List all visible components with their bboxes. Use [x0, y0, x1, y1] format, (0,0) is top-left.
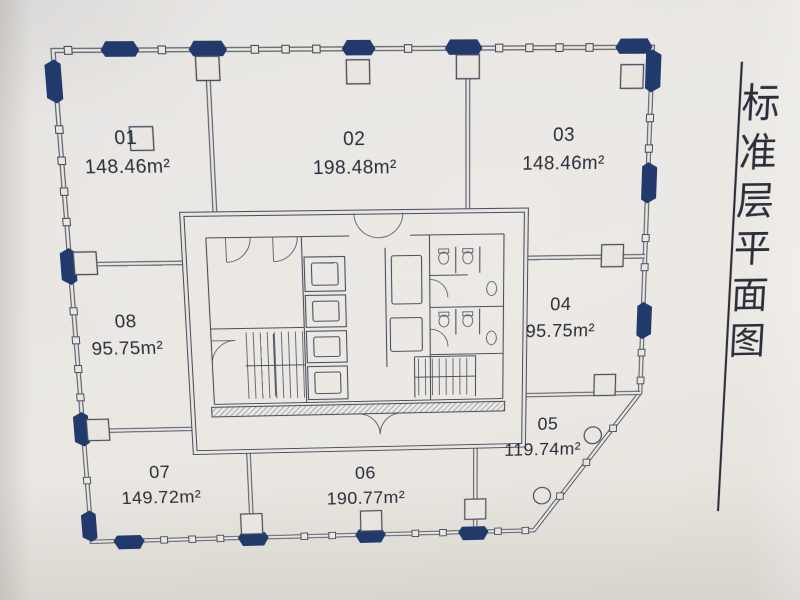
floorplan-svg: 01 148.46m² 02 198.48m² 03 148.46m² 04 9…	[0, 0, 800, 600]
restrooms	[430, 248, 497, 347]
stair-west	[211, 331, 307, 399]
svg-text:05: 05	[537, 415, 558, 434]
unit-label-03: 03 148.46m²	[522, 124, 606, 174]
stair-east	[415, 358, 476, 396]
svg-text:08: 08	[114, 312, 137, 333]
svg-text:图: 图	[728, 321, 767, 363]
svg-text:02: 02	[343, 129, 366, 151]
svg-text:标: 标	[740, 81, 781, 126]
unit-label-01: 01 148.46m²	[82, 127, 171, 178]
floorplan-photo: 01 148.46m² 02 198.48m² 03 148.46m² 04 9…	[0, 0, 800, 600]
svg-text:平: 平	[733, 228, 773, 271]
core-layer	[182, 210, 527, 453]
unit-label-04: 04 95.75m²	[525, 294, 595, 342]
svg-text:层: 层	[735, 180, 775, 224]
svg-text:准: 准	[738, 131, 778, 175]
svg-text:149.72m²: 149.72m²	[121, 488, 202, 509]
plan-title: 标 准 层 平 面 图	[718, 62, 783, 512]
double-door-north	[354, 213, 403, 238]
unit-label-08: 08 95.75m²	[89, 311, 164, 359]
svg-text:面: 面	[730, 275, 769, 317]
unit-label-07: 07 149.72m²	[119, 463, 202, 509]
unit-label-06: 06 190.77m²	[326, 463, 406, 509]
unit-label-02: 02 198.48m²	[312, 128, 397, 179]
svg-text:03: 03	[553, 125, 575, 147]
svg-text:148.46m²: 148.46m²	[84, 156, 171, 178]
elevator-cells	[304, 255, 423, 399]
svg-text:95.75m²: 95.75m²	[91, 338, 164, 359]
svg-text:95.75m²: 95.75m²	[525, 321, 595, 342]
lobby-doors	[225, 237, 298, 263]
svg-text:06: 06	[355, 464, 376, 483]
svg-text:198.48m²: 198.48m²	[313, 157, 397, 179]
plan-tilt-wrapper: 01 148.46m² 02 198.48m² 03 148.46m² 04 9…	[0, 0, 800, 600]
svg-text:190.77m²: 190.77m²	[326, 488, 405, 509]
svg-text:04: 04	[550, 295, 571, 315]
svg-text:148.46m²: 148.46m²	[522, 153, 605, 175]
svg-text:119.74m²: 119.74m²	[504, 440, 581, 461]
svg-text:07: 07	[149, 463, 171, 482]
unit-label-05: 05 119.74m²	[504, 414, 582, 460]
double-door-south	[358, 413, 401, 435]
svg-text:01: 01	[114, 127, 138, 149]
